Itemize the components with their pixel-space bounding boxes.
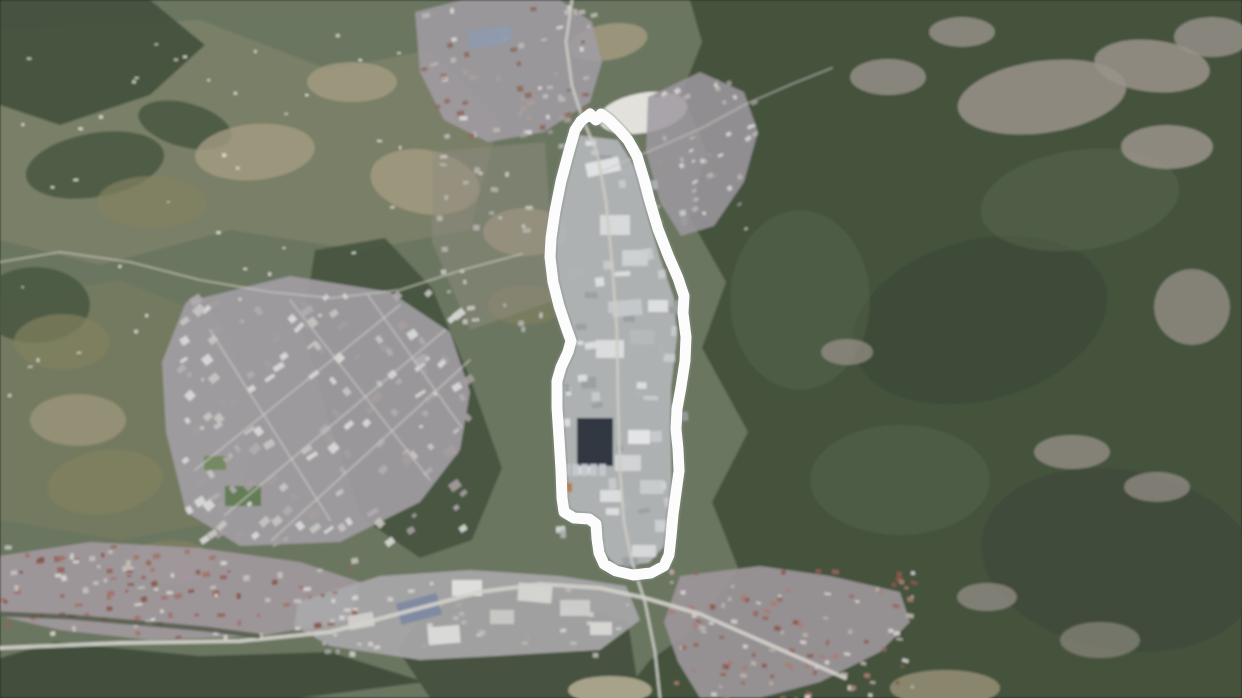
top-town-buildings — [582, 93, 589, 97]
bottom-left-town-buildings — [194, 613, 198, 616]
bottom-right-town-buildings — [682, 645, 686, 649]
bottom-left-town-buildings — [353, 608, 358, 611]
bottom-right-town-buildings — [815, 569, 821, 574]
industrial-zone-buildings — [576, 324, 587, 331]
bottom-right-town-buildings — [693, 624, 697, 628]
bottom-left-town-buildings — [6, 621, 11, 627]
hamlet-houses — [318, 314, 322, 317]
bottom-left-town-buildings — [50, 631, 56, 636]
bottom-right-town-buildings — [731, 585, 735, 589]
top-town-buildings — [493, 128, 500, 133]
top-town-buildings — [564, 117, 571, 122]
bottom-left-town-buildings — [348, 568, 352, 571]
bottom-left-town-buildings — [107, 591, 114, 596]
scree-patch — [1034, 435, 1110, 469]
top-town-buildings — [530, 7, 537, 12]
top-town-buildings — [520, 106, 526, 112]
hamlet-houses — [268, 272, 271, 276]
hamlet-houses — [283, 247, 286, 249]
top-town-buildings — [559, 116, 564, 121]
bottom-left-town-buildings — [57, 567, 64, 573]
bottom-right-town-buildings — [892, 583, 897, 588]
industrial-zone-buildings — [578, 375, 588, 382]
top-town-buildings — [574, 9, 577, 15]
top-town-buildings — [510, 47, 517, 52]
field-tan — [30, 394, 126, 446]
west-scatter-buildings — [463, 181, 469, 185]
bottom-left-town-buildings — [83, 587, 89, 593]
bottom-right-town-buildings — [731, 619, 738, 624]
bottom-center-warehouses — [590, 622, 612, 635]
bottom-left-town-buildings — [174, 593, 182, 599]
industrial-zone-buildings — [595, 277, 605, 287]
industrial-zone-buildings — [679, 210, 686, 217]
west-scatter-buildings — [505, 172, 509, 177]
industrial-zone-buildings — [650, 431, 662, 442]
bottom-left-town-buildings — [161, 596, 167, 600]
industrial-zone-buildings — [663, 354, 675, 363]
west-scatter-buildings — [498, 216, 502, 219]
top-town-buildings — [441, 76, 447, 81]
bottom-left-town-buildings — [220, 561, 227, 565]
hamlet-houses — [254, 50, 257, 54]
bottom-left-town-buildings — [106, 595, 111, 600]
bottom-right-town-buildings — [900, 665, 904, 668]
bottom-left-town-buildings — [141, 576, 146, 579]
bottom-right-town-buildings — [669, 610, 676, 614]
industrial-warehouses — [596, 340, 624, 358]
bottom-right-town-buildings — [699, 625, 706, 630]
bottom-center-buildings — [478, 630, 485, 635]
hamlet-houses — [118, 265, 121, 268]
hamlet-houses — [397, 52, 401, 54]
bottom-center-warehouses — [427, 625, 460, 646]
bottom-left-town-buildings — [167, 591, 173, 594]
bottom-right-town-buildings — [895, 681, 899, 685]
bottom-right-town-buildings — [721, 603, 725, 608]
industrial-zone-buildings — [637, 382, 647, 389]
bottom-left-town-buildings — [299, 585, 304, 588]
bottom-center-buildings — [560, 628, 566, 633]
hamlet-houses — [201, 378, 203, 381]
top-town-buildings — [459, 116, 467, 121]
west-scatter-buildings — [523, 228, 531, 233]
bottom-right-town-buildings — [743, 665, 748, 670]
scree-patch — [929, 17, 995, 47]
bottom-left-town-buildings — [104, 578, 107, 582]
bottom-left-town-buildings — [111, 545, 117, 548]
west-scatter-buildings — [441, 269, 446, 274]
industrial-zone-buildings — [568, 268, 584, 279]
sports-field — [204, 456, 226, 470]
bottom-right-town-buildings — [762, 616, 768, 619]
bottom-left-town-buildings — [243, 575, 250, 581]
bottom-left-town-buildings — [3, 600, 7, 603]
scree-patch — [1121, 125, 1213, 169]
field-olive — [97, 176, 207, 228]
forest-light-blob — [810, 425, 990, 535]
west-scatter-buildings — [518, 321, 524, 326]
industrial-zone-buildings — [591, 392, 600, 402]
bottom-right-town-buildings — [777, 597, 782, 602]
hamlet-houses — [21, 123, 24, 126]
bottom-center-buildings — [453, 616, 458, 620]
bottom-left-town-buildings — [220, 575, 227, 579]
industrial-zone-buildings — [560, 529, 566, 538]
industrial-warehouses — [632, 545, 656, 557]
hamlet-houses — [336, 34, 340, 37]
bottom-left-town-buildings — [339, 616, 345, 620]
bottom-right-town-buildings — [899, 580, 904, 585]
bottom-left-town-buildings — [321, 594, 325, 597]
top-town-buildings — [543, 94, 548, 98]
bottom-left-town-buildings — [108, 550, 113, 553]
bottom-left-town-buildings — [55, 574, 61, 578]
industrial-unit-row — [581, 464, 588, 476]
bottom-left-town-buildings — [295, 627, 300, 631]
hamlet-houses — [236, 166, 240, 170]
industrial-zone-buildings — [584, 292, 597, 299]
bottom-right-town-buildings — [802, 633, 808, 637]
bottom-right-town-buildings — [826, 640, 830, 645]
top-town-buildings — [538, 86, 542, 89]
hamlet-houses — [358, 59, 362, 62]
west-scatter-buildings — [473, 225, 480, 231]
bottom-center-buildings — [616, 627, 622, 630]
industrial-zone-buildings — [606, 508, 620, 515]
scree-patch — [957, 583, 1017, 611]
bottom-right-town-buildings — [896, 638, 903, 641]
bottom-center-buildings — [522, 642, 528, 645]
bottom-left-town-buildings — [217, 613, 225, 617]
top-town-buildings — [464, 51, 470, 57]
bottom-right-town-buildings — [888, 628, 894, 633]
terrain-layers — [0, 0, 1242, 698]
top-town-buildings — [517, 85, 524, 92]
west-scatter-buildings — [462, 319, 467, 324]
bottom-center-buildings — [430, 582, 434, 586]
bottom-left-town-buildings — [236, 593, 241, 599]
bottom-right-town-buildings — [870, 681, 876, 684]
bottom-left-town-buildings — [153, 553, 161, 559]
top-town-buildings — [539, 124, 545, 130]
industrial-warehouses — [648, 300, 668, 312]
bottom-left-town-buildings — [344, 608, 352, 611]
hamlet-houses — [239, 297, 242, 301]
bottom-left-town-buildings — [265, 598, 270, 602]
top-town-buildings — [517, 112, 523, 117]
bottom-left-town-buildings — [125, 590, 128, 593]
hamlet-houses — [222, 153, 226, 157]
bottom-center-buildings — [527, 636, 530, 639]
hamlet-houses — [174, 59, 178, 61]
industrial-zone-buildings — [618, 179, 626, 188]
bottom-right-town-buildings — [911, 571, 915, 575]
bottom-right-town-buildings — [907, 597, 914, 602]
hamlet-houses — [207, 79, 210, 82]
bottom-right-town-buildings — [728, 597, 732, 601]
hamlet-houses — [73, 178, 78, 181]
bottom-left-town-buildings — [237, 620, 241, 626]
hamlet-houses — [390, 206, 395, 208]
bottom-center-buildings — [325, 649, 331, 654]
bottom-center-buildings — [455, 602, 462, 607]
bottom-left-town-buildings — [209, 555, 216, 560]
bottom-left-town-buildings — [138, 586, 145, 589]
hamlet-houses — [399, 146, 402, 149]
bottom-center-buildings — [333, 633, 337, 636]
bottom-left-town-buildings — [36, 559, 42, 563]
hamlet-houses — [145, 314, 148, 317]
bottom-left-town-buildings — [277, 572, 283, 578]
bottom-left-town-buildings — [215, 594, 218, 597]
west-scatter-buildings — [440, 155, 447, 158]
industrial-warehouses — [600, 490, 622, 502]
hamlet-houses — [134, 77, 138, 79]
bottom-left-town-buildings — [127, 575, 131, 578]
industrial-zone-buildings — [681, 217, 688, 226]
hamlet-houses — [8, 394, 12, 397]
west-scatter-buildings — [522, 224, 526, 228]
bottom-right-town-buildings — [720, 673, 726, 677]
bottom-center-warehouses — [560, 600, 590, 616]
bottom-left-town-buildings — [171, 573, 175, 578]
bottom-left-town-buildings — [195, 570, 200, 575]
bottom-left-town-buildings — [126, 560, 131, 566]
bottom-center-buildings — [336, 649, 340, 654]
bottom-left-town-buildings — [60, 594, 64, 598]
bottom-left-town-buildings — [133, 555, 138, 559]
bottom-right-town-buildings — [719, 636, 724, 639]
top-town-buildings — [578, 10, 585, 15]
west-scatter-buildings — [474, 167, 480, 174]
bottom-right-town-buildings — [790, 666, 793, 670]
hamlet-houses — [419, 425, 423, 428]
hamlet-houses — [99, 115, 103, 118]
bottom-right-town-buildings — [770, 675, 774, 679]
bottom-right-town-buildings — [864, 640, 869, 644]
bottom-left-town-buildings — [70, 553, 74, 559]
west-scatter-buildings — [444, 195, 448, 200]
scree-patch — [821, 339, 873, 365]
bottom-right-town-buildings — [904, 586, 908, 589]
bottom-center-buildings — [422, 644, 426, 649]
bottom-center-buildings — [349, 651, 355, 657]
bottom-center-buildings — [461, 620, 466, 624]
bottom-left-town-buildings — [272, 579, 278, 585]
bottom-right-town-buildings — [774, 626, 781, 632]
hamlet-houses — [216, 231, 221, 234]
bottom-right-town-buildings — [894, 631, 900, 636]
bottom-right-town-buildings — [882, 647, 887, 652]
bottom-left-town-buildings — [89, 556, 95, 562]
field-tan — [307, 62, 397, 102]
bottom-right-town-buildings — [911, 685, 914, 688]
top-town-buildings — [444, 99, 450, 104]
west-scatter-buildings — [463, 280, 467, 285]
industrial-unit-row — [572, 464, 579, 476]
bottom-right-town-buildings — [674, 681, 679, 685]
west-scatter-buildings — [503, 304, 506, 307]
industrial-zone-buildings — [671, 326, 677, 336]
bottom-center-buildings — [626, 604, 630, 607]
scree-patch — [1060, 622, 1140, 658]
hamlet-houses — [27, 57, 32, 59]
top-town-buildings — [450, 8, 454, 14]
bottom-right-town-buildings — [807, 654, 813, 657]
bottom-right-town-buildings — [694, 573, 698, 576]
west-scatter-buildings — [472, 318, 480, 321]
bottom-left-town-buildings — [5, 545, 12, 549]
bottom-left-town-buildings — [331, 598, 336, 603]
top-town-buildings — [547, 86, 553, 90]
bottom-left-town-buildings — [134, 616, 140, 621]
bottom-right-town-buildings — [909, 613, 914, 618]
top-town-buildings — [525, 93, 532, 98]
industrial-zone-buildings — [608, 478, 616, 490]
hamlet-houses — [233, 91, 237, 95]
bottom-left-town-buildings — [303, 587, 311, 591]
bottom-right-town-buildings — [670, 581, 673, 584]
bottom-right-town-buildings — [710, 604, 716, 609]
bottom-left-town-buildings — [146, 560, 151, 565]
industrial-zone-buildings — [657, 270, 666, 279]
industrial-warehouses — [630, 330, 654, 344]
field-olive — [14, 314, 110, 370]
bottom-center-buildings — [593, 653, 599, 658]
industrial-unit-row — [599, 464, 606, 476]
bottom-left-town-buildings — [257, 614, 261, 618]
large-dark-roof-building — [577, 418, 613, 466]
west-scatter-buildings — [491, 187, 499, 192]
bottom-left-town-buildings — [135, 631, 140, 636]
bottom-left-town-buildings — [227, 570, 230, 573]
bottom-center-buildings — [387, 597, 393, 601]
bottom-right-town-buildings — [681, 591, 686, 595]
bottom-left-town-buildings — [106, 606, 112, 611]
satellite-map[interactable] — [0, 0, 1242, 698]
industrial-warehouses — [640, 480, 664, 494]
hamlet-houses — [36, 358, 39, 362]
hamlet-houses — [305, 94, 308, 96]
bottom-center-buildings — [566, 588, 572, 592]
bottom-left-town-buildings — [111, 577, 117, 580]
west-scatter-buildings — [539, 313, 543, 319]
scree-patch — [1124, 472, 1190, 502]
scree-patch — [850, 59, 926, 95]
bottom-right-town-buildings — [753, 611, 758, 616]
hamlet-houses — [51, 186, 55, 188]
industrial-zone-buildings — [659, 345, 665, 357]
west-scatter-buildings — [447, 290, 451, 293]
west-scatter-buildings — [442, 246, 449, 252]
bottom-left-town-buildings — [185, 549, 190, 554]
bottom-left-town-buildings — [127, 583, 134, 586]
bottom-left-town-buildings — [101, 553, 105, 558]
bottom-left-town-buildings — [93, 581, 99, 585]
hamlet-houses — [134, 330, 138, 334]
hamlet-houses — [167, 201, 169, 203]
hamlet-houses — [183, 55, 187, 58]
hamlet-houses — [155, 44, 159, 46]
bottom-left-town-buildings — [14, 585, 18, 591]
bottom-right-town-buildings — [832, 569, 839, 574]
industrial-zone-buildings — [643, 396, 658, 401]
west-scatter-buildings — [526, 206, 533, 210]
bottom-right-town-buildings — [752, 653, 756, 657]
bottom-center-buildings — [368, 642, 373, 647]
bottom-left-town-buildings — [127, 566, 134, 570]
scree-patch — [1154, 269, 1230, 345]
west-scatter-buildings — [489, 211, 494, 214]
hamlet-houses — [132, 80, 136, 83]
bottom-left-town-buildings — [25, 553, 30, 558]
bottom-right-town-buildings — [740, 595, 746, 601]
bottom-center-buildings — [570, 642, 577, 645]
top-town-buildings — [457, 110, 465, 116]
hamlet-houses — [78, 127, 83, 130]
bottom-right-town-buildings — [849, 595, 853, 598]
bottom-right-town-buildings — [797, 622, 803, 627]
industrial-warehouses — [600, 215, 630, 235]
bottom-left-town-buildings — [106, 569, 113, 574]
bottom-left-town-buildings — [19, 571, 22, 574]
bottom-right-town-buildings — [741, 682, 744, 685]
hamlet-houses — [243, 268, 247, 270]
industrial-zone-buildings — [614, 271, 630, 276]
bottom-center-buildings — [459, 612, 464, 616]
industrial-warehouses — [622, 250, 648, 266]
bottom-center-warehouses — [490, 610, 514, 624]
top-town-buildings — [468, 133, 475, 139]
west-scatter-buildings — [521, 327, 525, 332]
hamlet-houses — [21, 286, 23, 288]
bottom-right-town-buildings — [850, 686, 856, 691]
west-scatter-buildings — [437, 215, 443, 221]
industrial-unit-row — [590, 464, 597, 476]
satellite-canvas — [0, 0, 1242, 698]
bottom-right-town-buildings — [762, 663, 767, 668]
top-town-buildings — [587, 25, 591, 29]
bottom-left-town-buildings — [294, 599, 302, 603]
bottom-center-buildings — [322, 642, 325, 646]
bottom-right-town-buildings — [781, 631, 785, 634]
industrial-warehouses — [628, 430, 650, 444]
